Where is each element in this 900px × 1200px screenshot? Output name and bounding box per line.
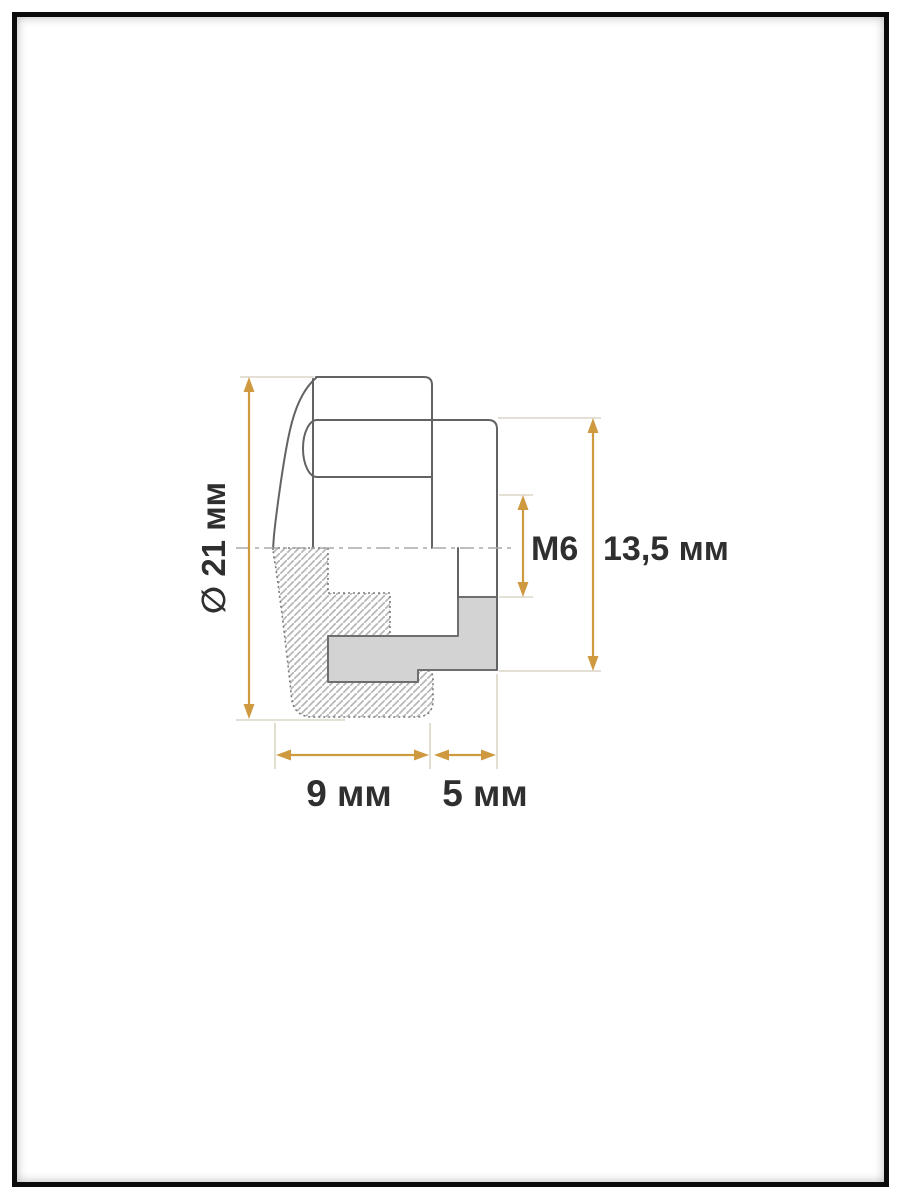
label-thread: M6 bbox=[531, 530, 578, 568]
arrow-diameter-down bbox=[244, 704, 255, 719]
arrow-thread-up bbox=[518, 495, 529, 510]
cap-top-right-edge bbox=[316, 377, 432, 548]
arrow-diameter-up bbox=[244, 377, 255, 392]
arrow-flange-width-right bbox=[481, 750, 496, 761]
arrow-thread-down bbox=[518, 582, 529, 597]
technical-drawing: ∅ 21 мм M6 13,5 мм 9 мм 5 мм bbox=[0, 0, 900, 1200]
label-insert-height: 13,5 мм bbox=[603, 530, 729, 568]
arrow-height-up bbox=[588, 418, 599, 433]
hatch-region bbox=[273, 548, 433, 717]
label-flange-width: 5 мм bbox=[442, 773, 528, 814]
arrow-body-width-left bbox=[276, 750, 291, 761]
framed-drawing-page: ∅ 21 мм M6 13,5 мм 9 мм 5 мм bbox=[0, 0, 900, 1200]
arrow-body-width-right bbox=[414, 750, 429, 761]
arrow-height-down bbox=[588, 656, 599, 671]
arrow-flange-width-left bbox=[434, 750, 449, 761]
outer-left-profile bbox=[273, 378, 316, 549]
label-body-width: 9 мм bbox=[306, 773, 392, 814]
label-diameter: ∅ 21 мм bbox=[195, 482, 232, 614]
bore-left-arc bbox=[303, 420, 317, 477]
